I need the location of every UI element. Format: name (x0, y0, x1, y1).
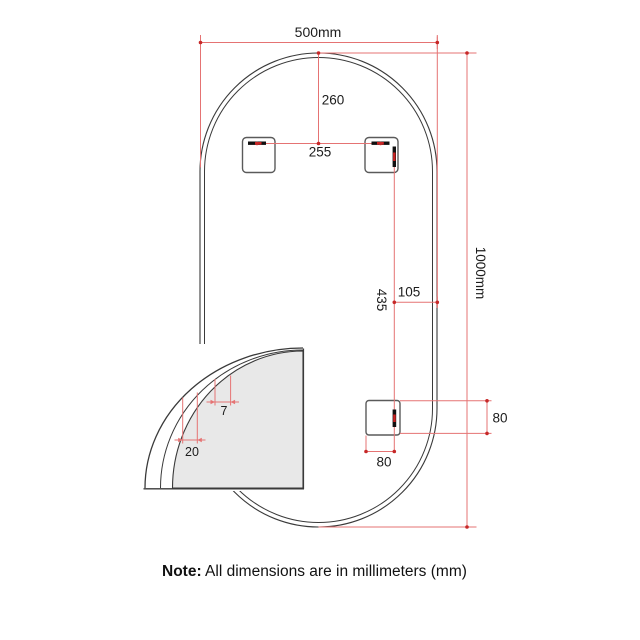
dim-label-height: 1000mm (473, 247, 487, 300)
dim-label-80-width: 80 (376, 455, 391, 469)
technical-drawing-mirror: 500mm 260 255 435 105 1000mm 80 80 7 20 … (0, 0, 640, 640)
dim-label-105: 105 (398, 285, 421, 299)
dim-label-width: 500mm (295, 25, 342, 39)
dim-label-260: 260 (322, 93, 345, 107)
note-label: Note: (162, 563, 202, 580)
detail-label-7: 7 (221, 405, 228, 418)
dim-label-435: 435 (374, 289, 388, 312)
drawing-geometry (0, 0, 640, 640)
note-text: All dimensions are in millimeters (mm) (202, 563, 467, 580)
dimensions-note: Note: All dimensions are in millimeters … (162, 563, 467, 582)
detail-label-20: 20 (185, 446, 199, 459)
dim-label-80-height: 80 (492, 411, 507, 425)
dim-label-255: 255 (309, 145, 332, 159)
